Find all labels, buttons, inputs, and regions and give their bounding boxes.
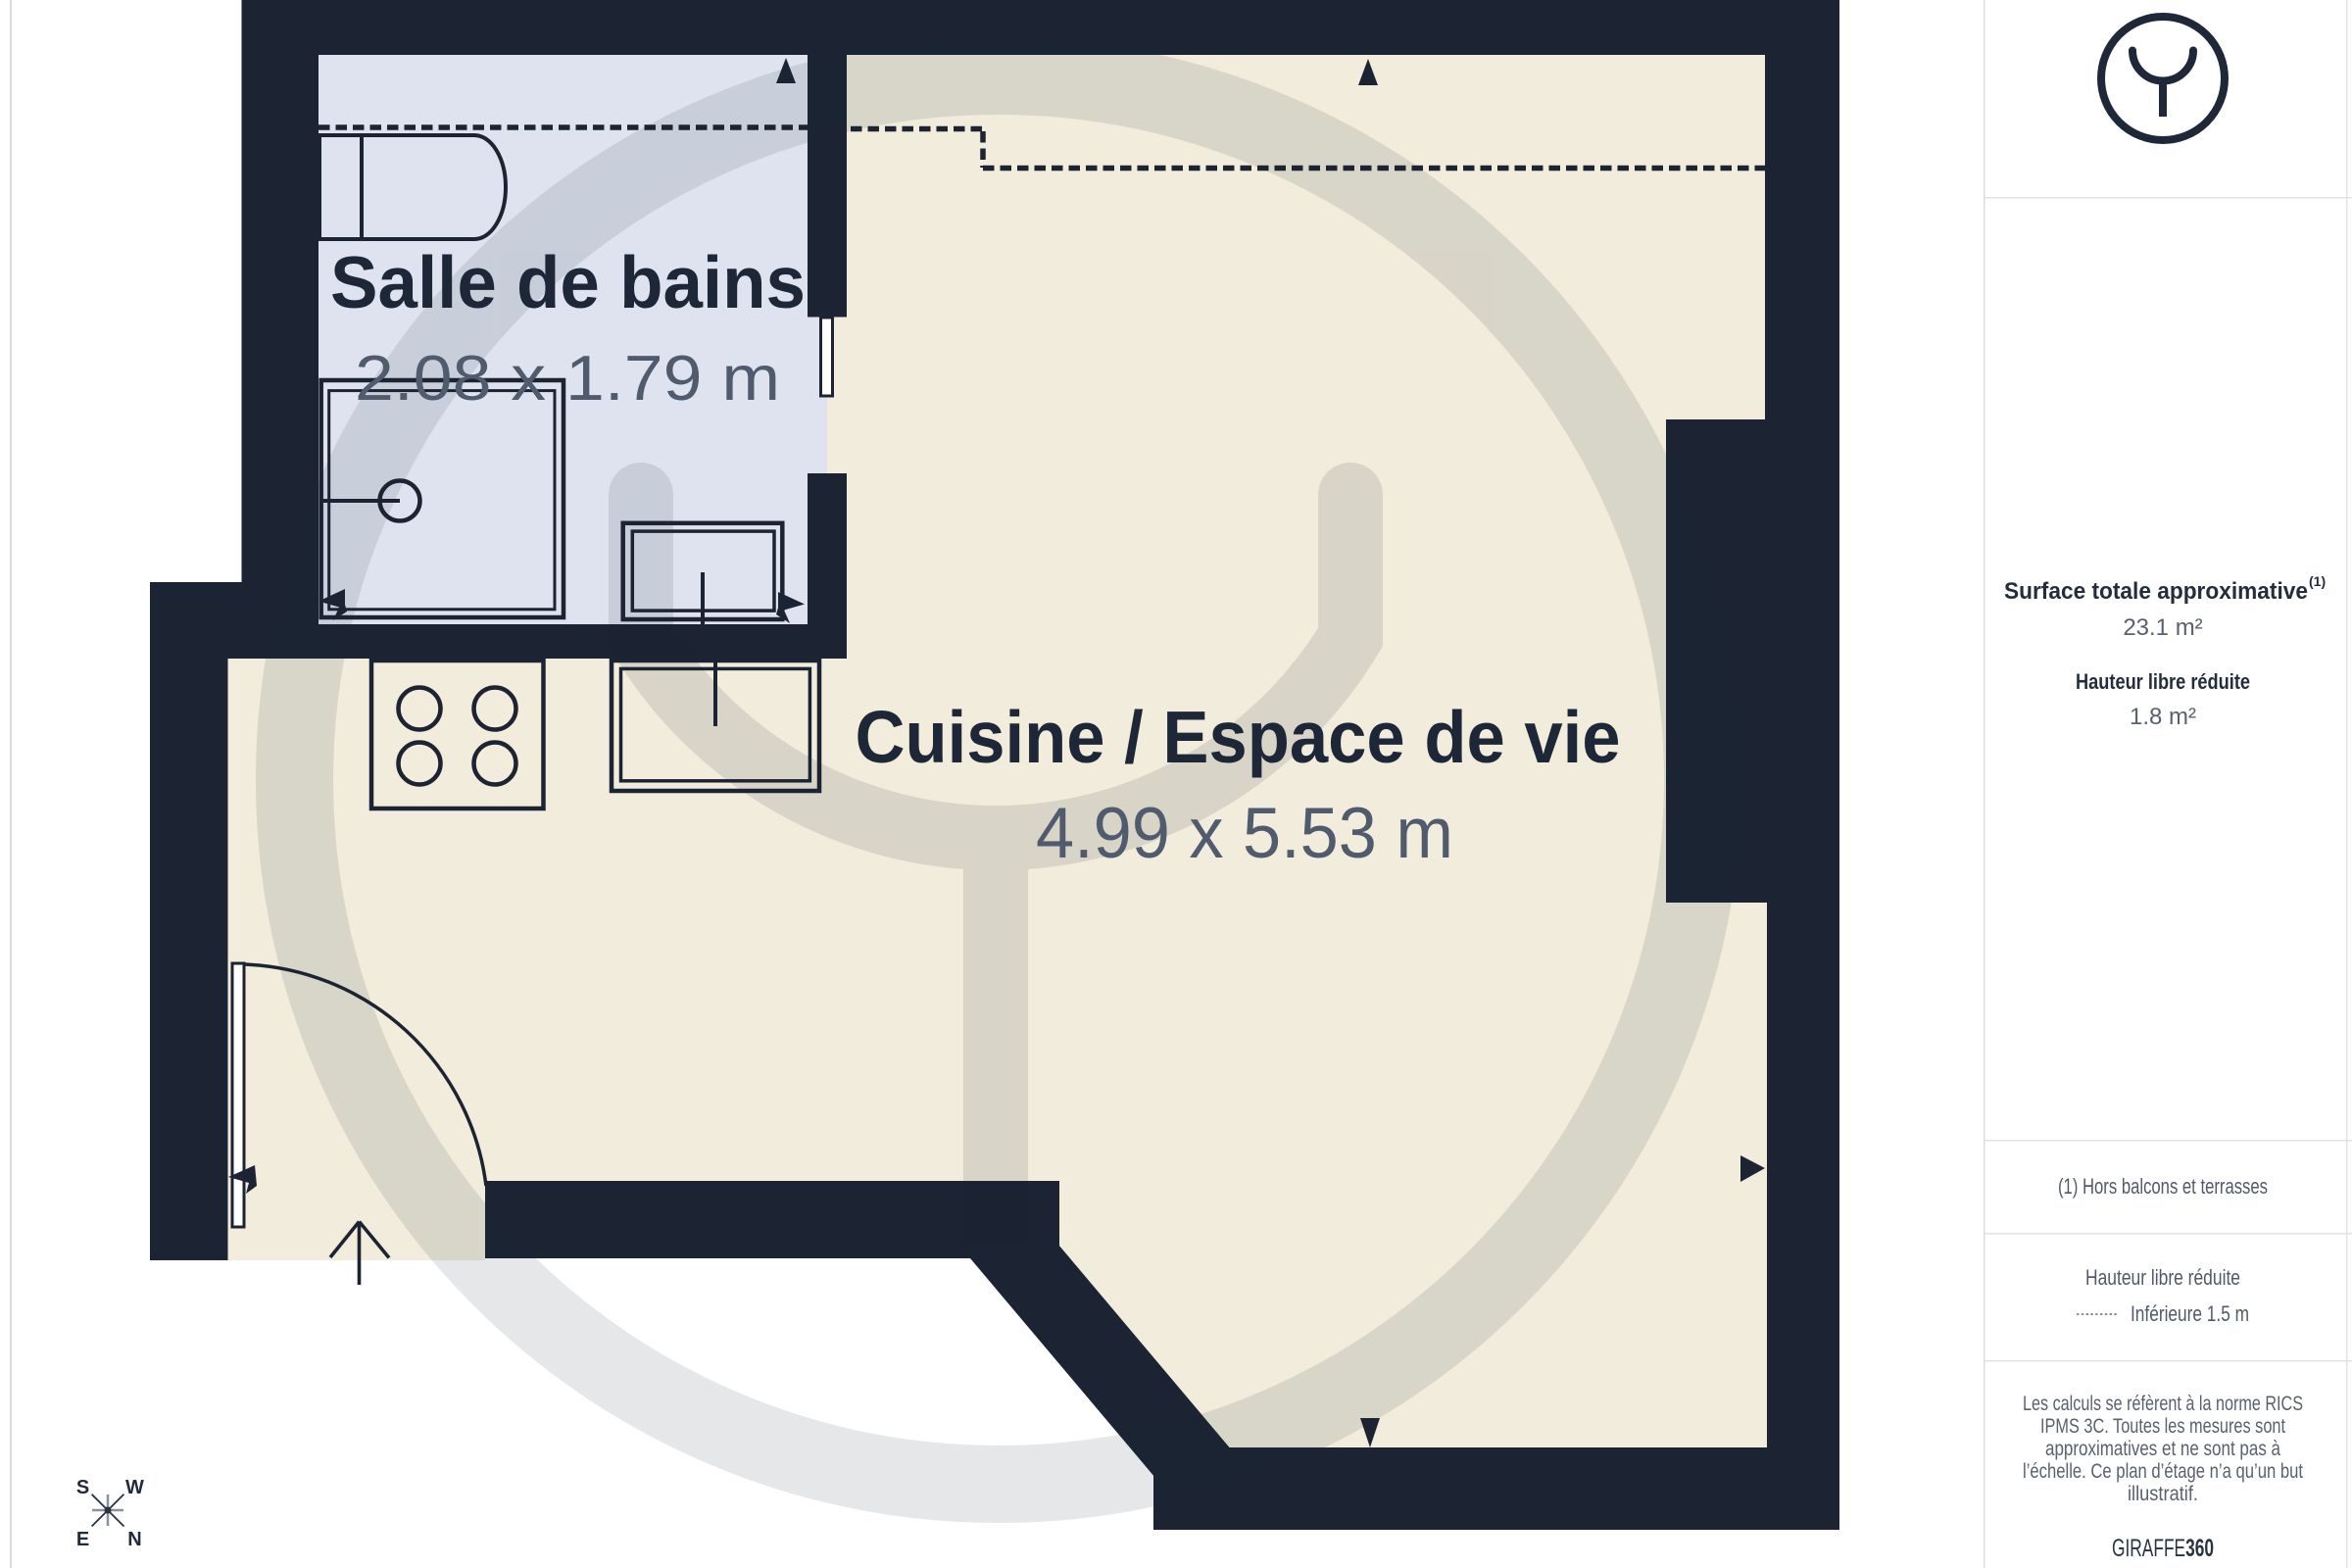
svg-text:W: W [125,1477,144,1498]
svg-text:illustratif.: illustratif. [2128,1483,2198,1505]
svg-text:23.1 m²: 23.1 m² [2123,614,2202,641]
svg-text:4.99 x 5.53 m: 4.99 x 5.53 m [1036,794,1453,873]
svg-text:approximatives et ne sont pas: approximatives et ne sont pas à [2045,1438,2280,1460]
svg-text:S: S [76,1477,89,1498]
svg-text:1.8 m²: 1.8 m² [2130,704,2196,730]
svg-text:Salle de bains: Salle de bains [330,241,806,323]
svg-text:GIRAFFE360: GIRAFFE360 [2112,1535,2214,1562]
svg-text:N: N [127,1529,141,1550]
svg-text:E: E [76,1529,89,1550]
svg-text:Surface totale approximative: Surface totale approximative [2004,578,2308,605]
svg-text:2.08 x 1.79 m: 2.08 x 1.79 m [355,342,780,414]
svg-text:Les calculs se réfèrent à la n: Les calculs se réfèrent à la norme RICS [2023,1393,2303,1415]
svg-text:Cuisine / Espace de vie: Cuisine / Espace de vie [856,696,1621,778]
svg-text:Inférieure 1.5 m: Inférieure 1.5 m [2131,1301,2249,1326]
svg-text:(1) Hors balcons et terrasses: (1) Hors balcons et terrasses [2058,1174,2268,1199]
svg-text:Hauteur libre réduite: Hauteur libre réduite [2076,669,2250,694]
svg-text:(1): (1) [2309,573,2326,589]
svg-text:IPMS 3C. Toutes les mesures so: IPMS 3C. Toutes les mesures sont [2040,1415,2285,1438]
svg-text:l’échelle. Ce plan d’étage n’a: l’échelle. Ce plan d’étage n’a qu’un but [2023,1460,2303,1483]
svg-text:Hauteur libre réduite: Hauteur libre réduite [2085,1265,2240,1290]
